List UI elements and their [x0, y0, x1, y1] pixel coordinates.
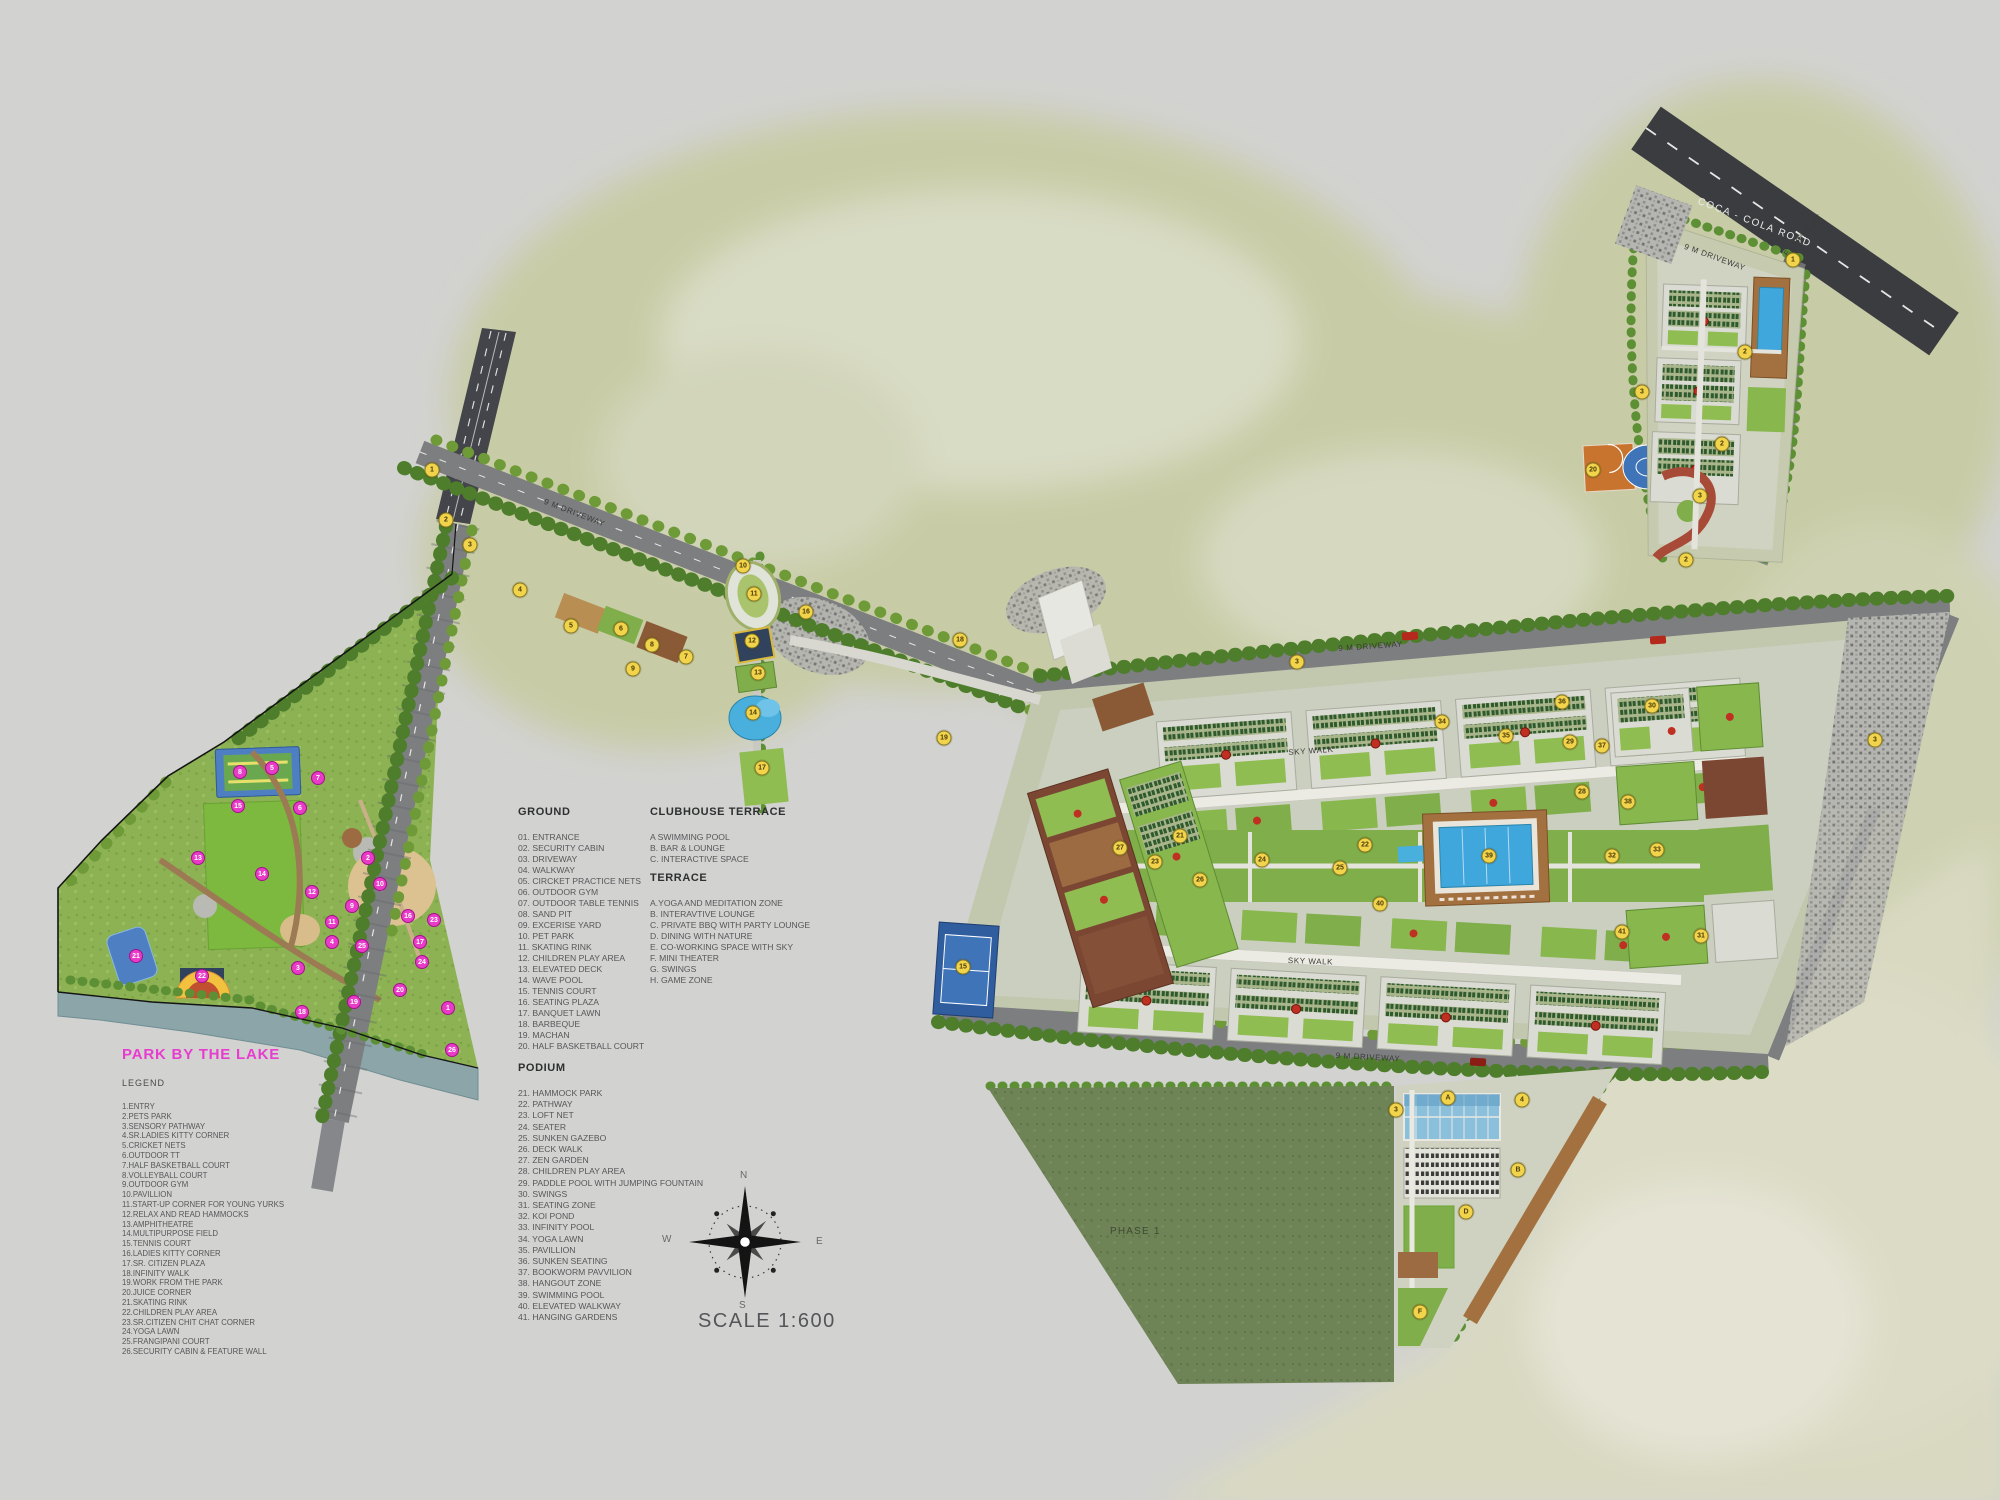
- legend-item: 8.VOLLEYBALL COURT: [122, 1171, 284, 1181]
- legend-item: 4.SR.LADIES KITTY CORNER: [122, 1131, 284, 1141]
- legend-item: B. BAR & LOUNGE: [650, 843, 786, 854]
- legend-item: 27. ZEN GARDEN: [518, 1155, 703, 1166]
- legend-item: 12.RELAX AND READ HAMMOCKS: [122, 1210, 284, 1220]
- legend-item: 28. CHILDREN PLAY AREA: [518, 1166, 703, 1177]
- legend-item: 15. TENNIS COURT: [518, 986, 644, 997]
- car: [1470, 1058, 1486, 1067]
- children-play-area: [734, 627, 775, 663]
- legend-item: 3.SENSORY PATHWAY: [122, 1122, 284, 1132]
- legend-item: 22.CHILDREN PLAY AREA: [122, 1308, 284, 1318]
- legend-item: 16.LADIES KITTY CORNER: [122, 1249, 284, 1259]
- legend-item: 1.ENTRY: [122, 1102, 284, 1112]
- legend-item: 20. HALF BASKETBALL COURT: [518, 1041, 644, 1052]
- legend-item: 36. SUNKEN SEATING: [518, 1256, 703, 1267]
- legend-item: E. CO-WORKING SPACE WITH SKY: [650, 942, 810, 953]
- clubhouse-terrace-legend-items: A SWIMMING POOLB. BAR & LOUNGEC. INTERAC…: [650, 832, 786, 865]
- legend-item: 14.MULTIPURPOSE FIELD: [122, 1229, 284, 1239]
- tower-block: [1227, 968, 1366, 1047]
- park-legend: PARK BY THE LAKE LEGEND 1.ENTRY2.PETS PA…: [122, 1046, 284, 1357]
- legend-item: 12. CHILDREN PLAY AREA: [518, 953, 644, 964]
- park-legend-heading: LEGEND: [122, 1078, 284, 1088]
- legend-item: 11. SKATING RINK: [518, 942, 644, 953]
- swimming-pool: [1423, 810, 1550, 906]
- legend-item: 25.FRANGIPANI COURT: [122, 1337, 284, 1347]
- legend-item: A.YOGA AND MEDITATION ZONE: [650, 898, 810, 909]
- legend-item: 21.SKATING RINK: [122, 1298, 284, 1308]
- clubhouse-terrace-legend-title: CLUBHOUSE TERRACE: [650, 806, 786, 818]
- legend-item: 18. BARBEQUE: [518, 1019, 644, 1030]
- legend-item: 11.START-UP CORNER FOR YOUNG YURKS: [122, 1200, 284, 1210]
- legend-item: 40. ELEVATED WALKWAY: [518, 1301, 703, 1312]
- site-plan-page: COCA - COLA ROADENTRY/EXIT9 M DRIVEWAY9 …: [0, 0, 2000, 1500]
- legend-item: 37. BOOKWORM PAVVILION: [518, 1267, 703, 1278]
- legend-item: 07. OUTDOOR TABLE TENNIS: [518, 898, 644, 909]
- ground-legend-items: 01. ENTRANCE02. SECURITY CABIN03. DRIVEW…: [518, 832, 644, 1052]
- terrace-legend: TERRACE A.YOGA AND MEDITATION ZONEB. INT…: [650, 872, 810, 986]
- compass-rose: [689, 1186, 801, 1298]
- clubhouse-glass-roof: [1404, 1094, 1500, 1140]
- legend-item: 21. HAMMOCK PARK: [518, 1088, 703, 1099]
- tower-block: [1377, 977, 1516, 1056]
- legend-item: 24.YOGA LAWN: [122, 1327, 284, 1337]
- legend-item: 38. HANGOUT ZONE: [518, 1278, 703, 1289]
- legend-item: 19.WORK FROM THE PARK: [122, 1278, 284, 1288]
- park-legend-items: 1.ENTRY2.PETS PARK3.SENSORY PATHWAY4.SR.…: [122, 1102, 284, 1357]
- legend-item: 39. SWIMMING POOL: [518, 1290, 703, 1301]
- legend-item: 30. SWINGS: [518, 1189, 703, 1200]
- legend-item: B. INTERAVTIVE LOUNGE: [650, 909, 810, 920]
- legend-item: 5.CRICKET NETS: [122, 1141, 284, 1151]
- legend-item: 26.SECURITY CABIN & FEATURE WALL: [122, 1347, 284, 1357]
- legend-item: C. INTERACTIVE SPACE: [650, 854, 786, 865]
- legend-item: F. MINI THEATER: [650, 953, 810, 964]
- legend-item: 9.OUTDOOR GYM: [122, 1180, 284, 1190]
- site-plan-canvas: [0, 0, 2000, 1500]
- tower-block: [1527, 985, 1666, 1064]
- clubhouse-terrace-legend: CLUBHOUSE TERRACE A SWIMMING POOLB. BAR …: [650, 806, 786, 865]
- legend-item: H. GAME ZONE: [650, 975, 810, 986]
- clubhouse-facade: [1404, 1148, 1500, 1198]
- legend-item: 6.OUTDOOR TT: [122, 1151, 284, 1161]
- legend-item: 18.INFINITY WALK: [122, 1269, 284, 1279]
- legend-item: 06. OUTDOOR GYM: [518, 887, 644, 898]
- legend-item: 35. PAVILLION: [518, 1245, 703, 1256]
- legend-item: 16. SEATING PLAZA: [518, 997, 644, 1008]
- legend-item: 15.TENNIS COURT: [122, 1239, 284, 1249]
- podium-legend-items: 21. HAMMOCK PARK22. PATHWAY23. LOFT NET2…: [518, 1088, 703, 1323]
- legend-item: 09. EXCERISE YARD: [518, 920, 644, 931]
- legend-item: 01. ENTRANCE: [518, 832, 644, 843]
- legend-item: A SWIMMING POOL: [650, 832, 786, 843]
- legend-item: 08. SAND PIT: [518, 909, 644, 920]
- legend-item: 13.AMPHITHEATRE: [122, 1220, 284, 1230]
- legend-item: 32. KOI POND: [518, 1211, 703, 1222]
- tower-block: [1455, 689, 1595, 777]
- legend-item: 14. WAVE POOL: [518, 975, 644, 986]
- terrace-legend-title: TERRACE: [650, 872, 810, 884]
- legend-item: 24. SEATER: [518, 1122, 703, 1133]
- legend-item: 23. LOFT NET: [518, 1110, 703, 1121]
- koi-pond: [1398, 845, 1425, 862]
- tennis-court: [933, 922, 999, 1018]
- legend-item: 19. MACHAN: [518, 1030, 644, 1041]
- legend-item: 25. SUNKEN GAZEBO: [518, 1133, 703, 1144]
- legend-item: 20.JUICE CORNER: [122, 1288, 284, 1298]
- banquet-lawn: [739, 748, 788, 806]
- legend-item: C. PRIVATE BBQ WITH PARTY LOUNGE: [650, 920, 810, 931]
- legend-item: G. SWINGS: [650, 964, 810, 975]
- legend-item: 26. DECK WALK: [518, 1144, 703, 1155]
- phase-1-area: [988, 1086, 1394, 1384]
- car: [1402, 631, 1419, 640]
- legend-item: 34. YOGA LAWN: [518, 1234, 703, 1245]
- podium-legend: PODIUM 21. HAMMOCK PARK22. PATHWAY23. LO…: [518, 1062, 703, 1323]
- elevated-deck: [735, 661, 776, 692]
- park-legend-title: PARK BY THE LAKE: [122, 1046, 284, 1063]
- tower-block: [1306, 701, 1446, 789]
- legend-item: 03. DRIVEWAY: [518, 854, 644, 865]
- legend-item: 17.SR. CITIZEN PLAZA: [122, 1259, 284, 1269]
- parcel-pool: [1757, 287, 1783, 352]
- legend-item: D. DINING WITH NATURE: [650, 931, 810, 942]
- ground-legend: GROUND 01. ENTRANCE02. SECURITY CABIN03.…: [518, 806, 644, 1052]
- legend-item: 2.PETS PARK: [122, 1112, 284, 1122]
- legend-item: 41. HANGING GARDENS: [518, 1312, 703, 1323]
- legend-item: 17. BANQUET LAWN: [518, 1008, 644, 1019]
- car: [1650, 635, 1667, 644]
- legend-item: 05. CIRCKET PRACTICE NETS: [518, 876, 644, 887]
- ground-legend-title: GROUND: [518, 806, 644, 818]
- legend-item: 29. PADDLE POOL WITH JUMPING FOUNTAIN: [518, 1178, 703, 1189]
- podium-legend-title: PODIUM: [518, 1062, 703, 1074]
- legend-item: 22. PATHWAY: [518, 1099, 703, 1110]
- legend-item: 10.PAVILLION: [122, 1190, 284, 1200]
- legend-item: 23.SR.CITIZEN CHIT CHAT CORNER: [122, 1318, 284, 1328]
- legend-item: 10. PET PARK: [518, 931, 644, 942]
- legend-item: 7.HALF BASKETBALL COURT: [122, 1161, 284, 1171]
- legend-item: 02. SECURITY CABIN: [518, 843, 644, 854]
- legend-item: 13. ELEVATED DECK: [518, 964, 644, 975]
- legend-item: 31. SEATING ZONE: [518, 1200, 703, 1211]
- legend-item: 04. WALKWAY: [518, 865, 644, 876]
- legend-item: 33. INFINITY POOL: [518, 1222, 703, 1233]
- terrace-legend-items: A.YOGA AND MEDITATION ZONEB. INTERAVTIVE…: [650, 898, 810, 986]
